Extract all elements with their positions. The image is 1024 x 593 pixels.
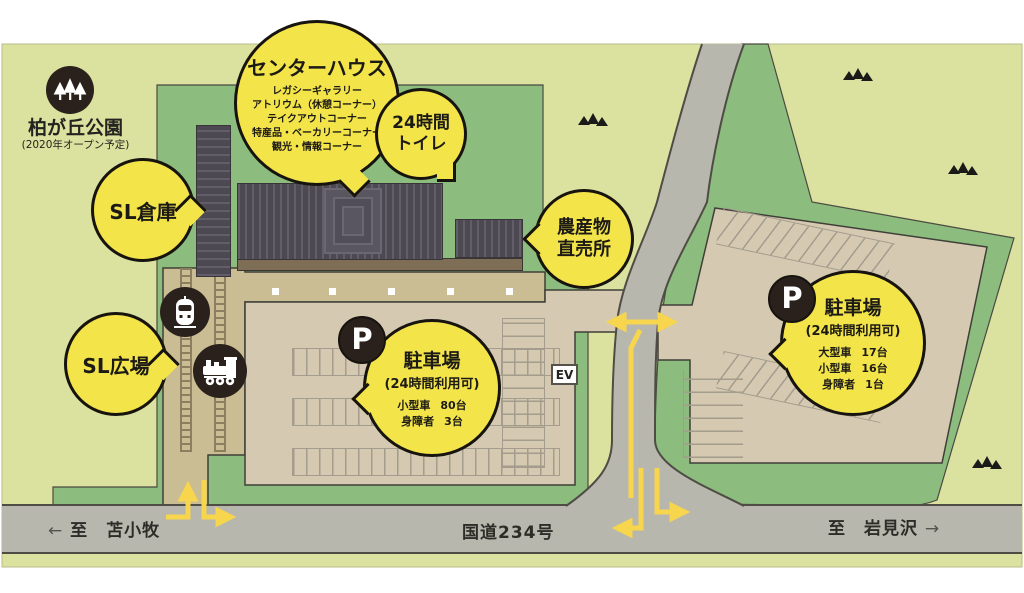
park-icon <box>46 66 94 114</box>
steam-locomotive-icon <box>200 351 240 391</box>
capacity-row: 小型車 80台 <box>397 398 466 414</box>
parking-east-title: 駐車場 <box>824 293 881 320</box>
capacity-row: 身障者 1台 <box>822 377 884 393</box>
train-marker <box>160 287 210 337</box>
park-trees-icon <box>50 74 90 106</box>
atrium-roof <box>324 188 382 254</box>
sl-plaza-label: SL広場 <box>82 350 149 379</box>
sl-marker <box>193 344 247 398</box>
farm-stand-line1: 農産物 <box>557 217 611 240</box>
center-house-bubble: センターハウス レガシーギャラリー アトリウム（休憩コーナー） テイクアウトコー… <box>234 20 400 186</box>
toilet-bubble: 24時間 トイレ <box>375 88 467 180</box>
site-map: EV 柏が丘公園 (2020年オープン予定) センターハウス レガシーギャラリー… <box>0 0 1024 593</box>
sl-warehouse-building <box>196 125 231 277</box>
farm-stand-line2: 直売所 <box>557 239 611 262</box>
parking-stalls-west-col <box>502 318 545 468</box>
park-name-label: 柏が丘公園 <box>8 113 143 140</box>
toilet-line2: トイレ <box>396 134 447 155</box>
parking-main-title: 駐車場 <box>403 346 460 373</box>
train-front-icon <box>167 294 203 330</box>
destination-east-label: 至 岩見沢 → <box>828 514 940 539</box>
ev-charger-sign: EV <box>551 364 578 385</box>
center-house-title: センターハウス <box>247 52 387 81</box>
sl-plaza-bubble: SL広場 <box>64 312 168 416</box>
toilet-line1: 24時間 <box>392 113 450 134</box>
ev-sign-label: EV <box>556 368 573 382</box>
sl-warehouse-bubble: SL倉庫 <box>91 158 195 262</box>
capacity-row: 大型車 17台 <box>818 345 887 361</box>
parking-main-p-icon: P <box>338 316 386 364</box>
farm-stand-building <box>455 219 523 258</box>
bubble-tail <box>437 163 456 182</box>
center-house-items: レガシーギャラリー アトリウム（休憩コーナー） テイクアウトコーナー 特産品・ベ… <box>252 85 382 155</box>
route-number-label: 国道234号 <box>462 518 555 543</box>
parking-stalls-east-col <box>683 370 743 458</box>
west-arrow-icon: ← <box>48 521 63 541</box>
capacity-row: 身障者 3台 <box>401 414 463 430</box>
parking-east-subtitle: (24時間利用可) <box>806 320 901 339</box>
parking-east-p-icon: P <box>768 275 816 323</box>
parking-main-subtitle: (24時間利用可) <box>385 373 480 392</box>
destination-west-label: ← 至 苫小牧 <box>48 516 160 541</box>
east-arrow-icon: → <box>925 519 940 539</box>
sl-warehouse-label: SL倉庫 <box>109 196 176 225</box>
capacity-row: 小型車 16台 <box>818 361 887 377</box>
park-note-label: (2020年オープン予定) <box>8 137 143 152</box>
center-house-building <box>237 183 443 260</box>
farm-stand-bubble: 農産物 直売所 <box>534 189 634 289</box>
